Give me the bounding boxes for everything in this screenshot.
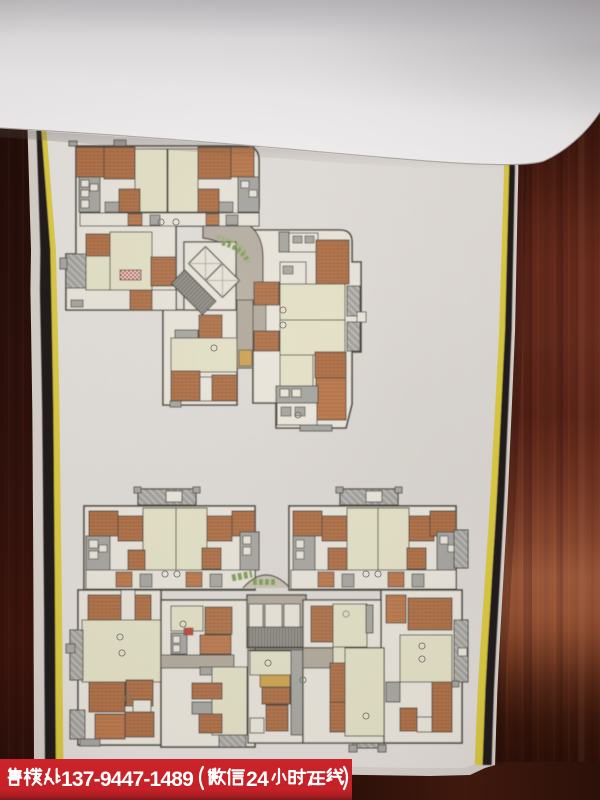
svg-text:137-9447-1489: 137-9447-1489: [61, 768, 193, 791]
svg-text:24: 24: [246, 768, 269, 791]
